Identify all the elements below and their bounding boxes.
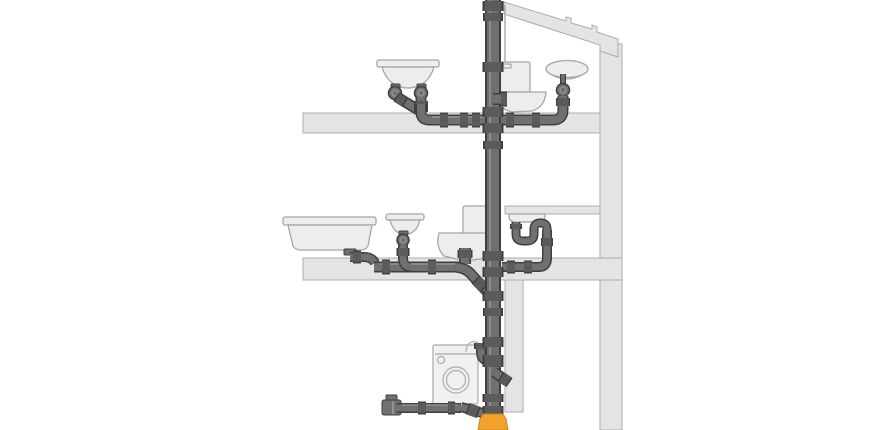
coupling-body	[471, 405, 475, 416]
coupling-body	[398, 96, 403, 104]
washbasin-rim	[377, 60, 439, 67]
washbasin-rim	[386, 214, 424, 220]
washing-machine	[433, 342, 480, 404]
underground-adapter-fitting	[478, 414, 508, 430]
diagram-canvas	[0, 0, 870, 430]
washbasin-top-right	[546, 61, 588, 80]
bathtub-body	[288, 225, 372, 250]
coupling-body	[502, 375, 508, 384]
service-wall-strip	[505, 280, 523, 412]
coupling-body	[476, 280, 484, 288]
drainage-diagram	[0, 0, 870, 430]
bathtub	[283, 217, 376, 250]
double-washbasin-top	[377, 60, 439, 88]
flush-button	[503, 64, 511, 68]
right-wall	[600, 44, 622, 430]
washbasin-trap-middle	[397, 231, 411, 267]
trap-ball-joint	[397, 234, 409, 246]
trap-ball-joint	[557, 84, 570, 97]
bathtub-rim	[283, 217, 376, 225]
kitchen-counter	[505, 206, 600, 214]
roof	[504, 2, 618, 57]
